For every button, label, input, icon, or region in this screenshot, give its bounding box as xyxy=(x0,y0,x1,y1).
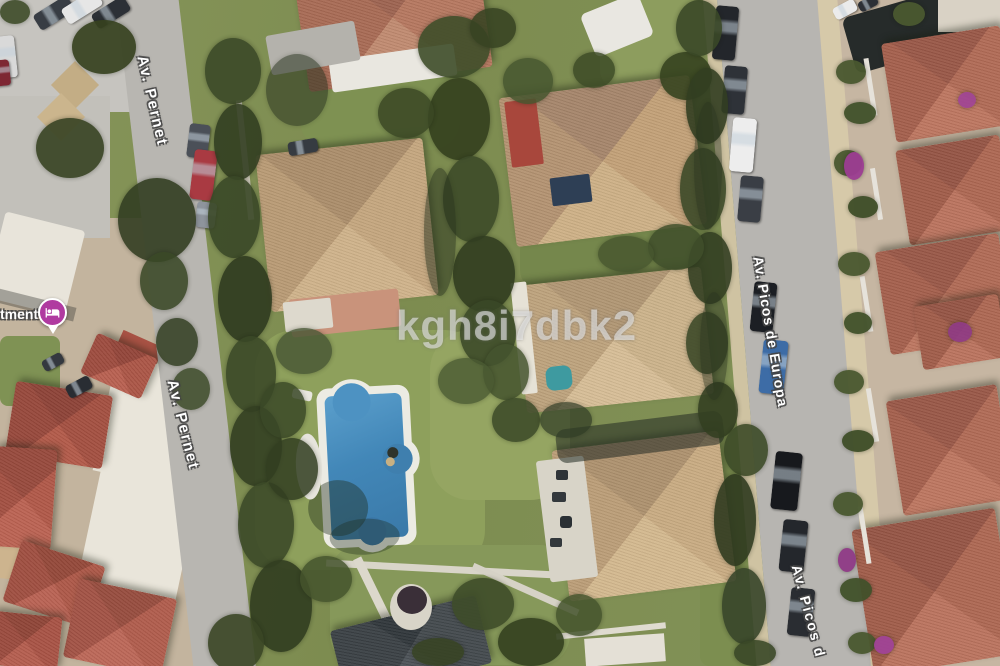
tree xyxy=(266,438,318,500)
tree xyxy=(214,104,262,180)
tree xyxy=(300,556,352,602)
patio-furniture xyxy=(556,470,568,480)
car xyxy=(737,175,764,223)
tree xyxy=(833,492,863,516)
bougainvillea xyxy=(948,322,972,342)
tree xyxy=(724,424,768,476)
tree xyxy=(834,370,864,394)
bougainvillea xyxy=(838,548,856,572)
tree xyxy=(540,402,592,438)
tree xyxy=(842,430,874,452)
solar-panels xyxy=(549,174,592,207)
bougainvillea xyxy=(844,152,864,180)
tree xyxy=(844,312,872,334)
patio xyxy=(584,633,666,666)
tree xyxy=(378,88,434,138)
bougainvillea xyxy=(874,636,894,654)
shadow xyxy=(694,102,722,230)
pin-tail xyxy=(48,326,58,334)
tree xyxy=(208,176,260,258)
tree xyxy=(118,178,196,262)
tree xyxy=(722,568,766,644)
tree xyxy=(676,0,722,56)
garden-tower-roof xyxy=(397,586,427,614)
shadow xyxy=(424,168,456,296)
tree xyxy=(452,578,514,630)
patio-furniture xyxy=(550,538,562,547)
swimming-pool xyxy=(307,375,446,558)
tree xyxy=(412,638,464,666)
tree xyxy=(208,614,264,666)
tree xyxy=(714,474,756,566)
tree xyxy=(260,382,306,438)
tree xyxy=(893,2,925,26)
tree xyxy=(438,358,494,404)
patio-furniture xyxy=(560,516,572,528)
shadow xyxy=(700,292,728,400)
shadow xyxy=(266,54,328,126)
tree xyxy=(36,118,104,178)
tree xyxy=(844,102,876,124)
tree xyxy=(72,20,136,74)
tree xyxy=(428,78,490,160)
tree xyxy=(0,0,30,24)
map-canvas[interactable]: kgh8i7dbk2 Av. Pernet Av. Pernet Av. Pic… xyxy=(0,0,1000,666)
car-white xyxy=(729,117,758,173)
tree xyxy=(492,398,540,442)
tree xyxy=(648,224,704,270)
tree xyxy=(470,8,516,48)
tree xyxy=(848,632,876,654)
tree xyxy=(276,328,332,374)
tree xyxy=(503,58,553,104)
tree xyxy=(498,618,564,666)
apartment-poi: tment xyxy=(0,296,200,340)
watermark-text: kgh8i7dbk2 xyxy=(396,302,637,350)
townhouse-roof xyxy=(895,134,1000,245)
apartment-roof xyxy=(0,446,57,550)
tree xyxy=(734,640,776,666)
townhouse-roof xyxy=(881,25,1000,143)
terrace-white xyxy=(283,298,334,333)
tree xyxy=(840,578,872,602)
apartment-roof xyxy=(0,610,63,666)
tree xyxy=(556,594,602,636)
tree xyxy=(205,38,261,104)
townhouse-roof xyxy=(886,384,1000,516)
tree xyxy=(573,52,615,88)
villa-west xyxy=(255,138,439,313)
lodging-pin[interactable] xyxy=(38,298,67,327)
bougainvillea xyxy=(958,92,976,108)
tree xyxy=(218,256,272,342)
tree xyxy=(838,252,870,276)
small-pool xyxy=(545,365,573,392)
tree xyxy=(836,60,866,84)
poi-label[interactable]: tment xyxy=(0,306,38,322)
tree xyxy=(848,196,878,218)
patio-furniture xyxy=(552,492,566,502)
tree xyxy=(598,236,654,272)
bed-icon xyxy=(45,305,60,320)
